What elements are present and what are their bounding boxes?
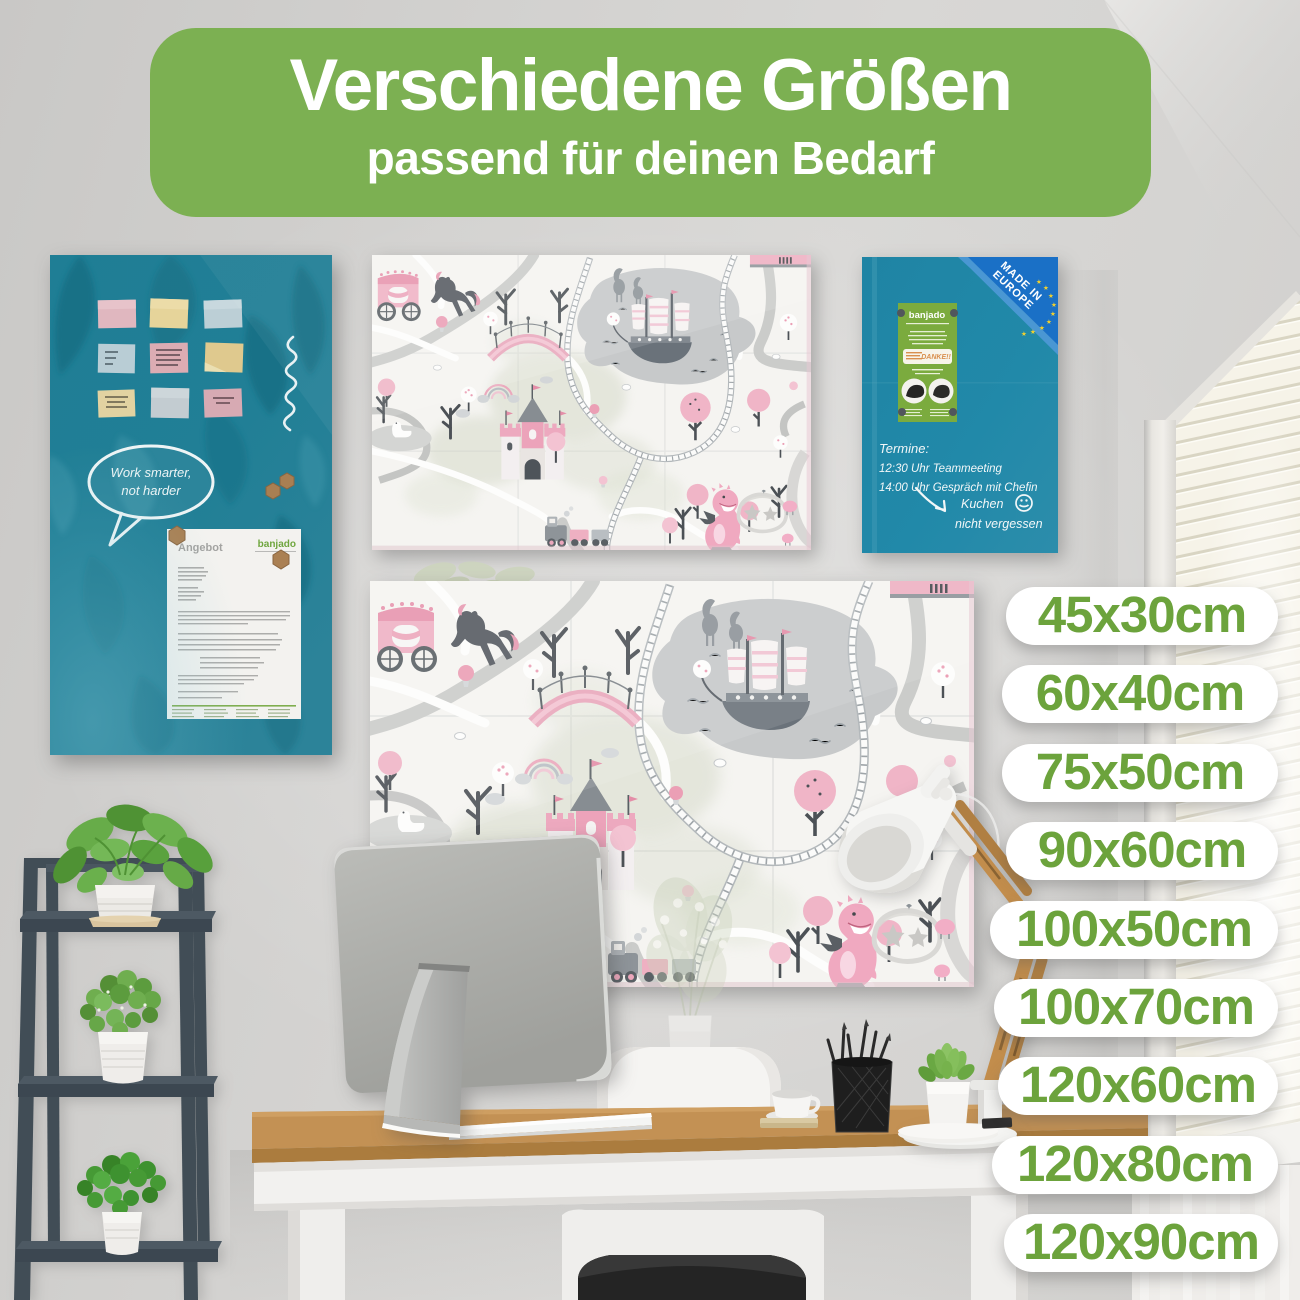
svg-text:★: ★	[1039, 324, 1045, 332]
svg-text:12:30 Uhr Teammeeting: 12:30 Uhr Teammeeting	[879, 463, 1003, 475]
svg-text:★: ★	[1030, 328, 1036, 336]
svg-text:Kuchen: Kuchen	[961, 497, 1003, 511]
svg-text:DANKE!!: DANKE!!	[921, 354, 951, 361]
svg-text:★: ★	[1051, 301, 1057, 309]
svg-text:★: ★	[1050, 310, 1056, 318]
svg-text:★: ★	[1036, 278, 1042, 286]
svg-text:14:00 Uhr Gespräch mit Chefin: 14:00 Uhr Gespräch mit Chefin	[879, 482, 1038, 494]
svg-text:★: ★	[1046, 318, 1052, 326]
svg-text:★: ★	[1048, 292, 1054, 300]
svg-text:Termine:: Termine:	[879, 441, 929, 456]
svg-text:nicht vergessen: nicht vergessen	[955, 517, 1043, 531]
svg-text:★: ★	[1043, 284, 1049, 292]
svg-text:banjado: banjado	[909, 310, 946, 321]
svg-text:★: ★	[1021, 330, 1027, 338]
